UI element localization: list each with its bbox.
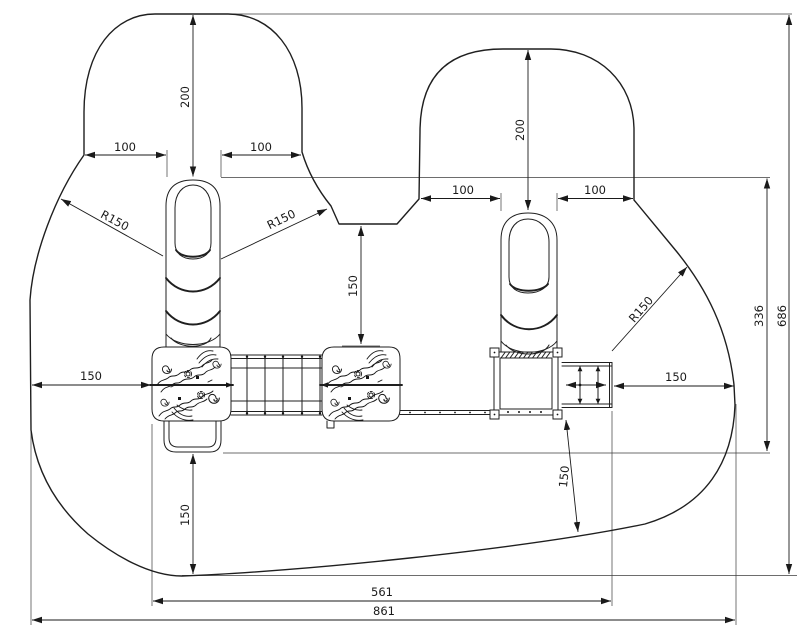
- dim-label-150-bottom: 150: [178, 504, 192, 526]
- climbing-mast-right: [501, 213, 557, 354]
- dim-label-r150-right: R150: [626, 293, 656, 325]
- net-bridge: [226, 355, 328, 415]
- dim-label-861: 861: [373, 604, 395, 618]
- climbing-panel-right: [320, 347, 402, 428]
- drawing-sheet: 200 200 100 100 100 100 150 150 150 150 …: [0, 0, 800, 631]
- connector-rail: [400, 411, 493, 415]
- dim-label-100-left-outer: 100: [114, 140, 136, 154]
- dim-label-150-slide: 150: [556, 465, 572, 488]
- dim-label-100-right-inner: 100: [452, 183, 474, 197]
- ladder: [562, 363, 612, 408]
- panel-foot-tab: [327, 421, 334, 428]
- dim-label-r150-middle: R150: [265, 207, 298, 233]
- dimension-annotations: 200 200 100 100 100 100 150 150 150 150 …: [32, 15, 789, 620]
- dim-label-200-right: 200: [513, 119, 527, 141]
- dim-label-150-left: 150: [80, 369, 102, 383]
- dim-label-150-center: 150: [346, 275, 360, 297]
- platform: [490, 348, 562, 419]
- safety-zone-boundary: [30, 14, 735, 576]
- dim-label-r150-left: R150: [98, 207, 131, 233]
- platform-top-hatch: [501, 353, 550, 359]
- dim-label-150-right: 150: [665, 370, 687, 384]
- dim-label-100-left-inner: 100: [250, 140, 272, 154]
- play-structure: [150, 180, 612, 452]
- climbing-mast-left: [166, 180, 220, 347]
- dim-label-100-right-outer: 100: [584, 183, 606, 197]
- dim-label-561: 561: [371, 585, 393, 599]
- dim-label-336: 336: [752, 305, 766, 327]
- dim-label-200-left: 200: [178, 86, 192, 108]
- safety-zone: [30, 14, 735, 576]
- dim-label-686: 686: [775, 305, 789, 327]
- grab-loop: [164, 421, 221, 452]
- plan-view-drawing: 200 200 100 100 100 100 150 150 150 150 …: [0, 0, 800, 631]
- extension-lines: [31, 14, 797, 625]
- climbing-panel-left: [150, 347, 233, 421]
